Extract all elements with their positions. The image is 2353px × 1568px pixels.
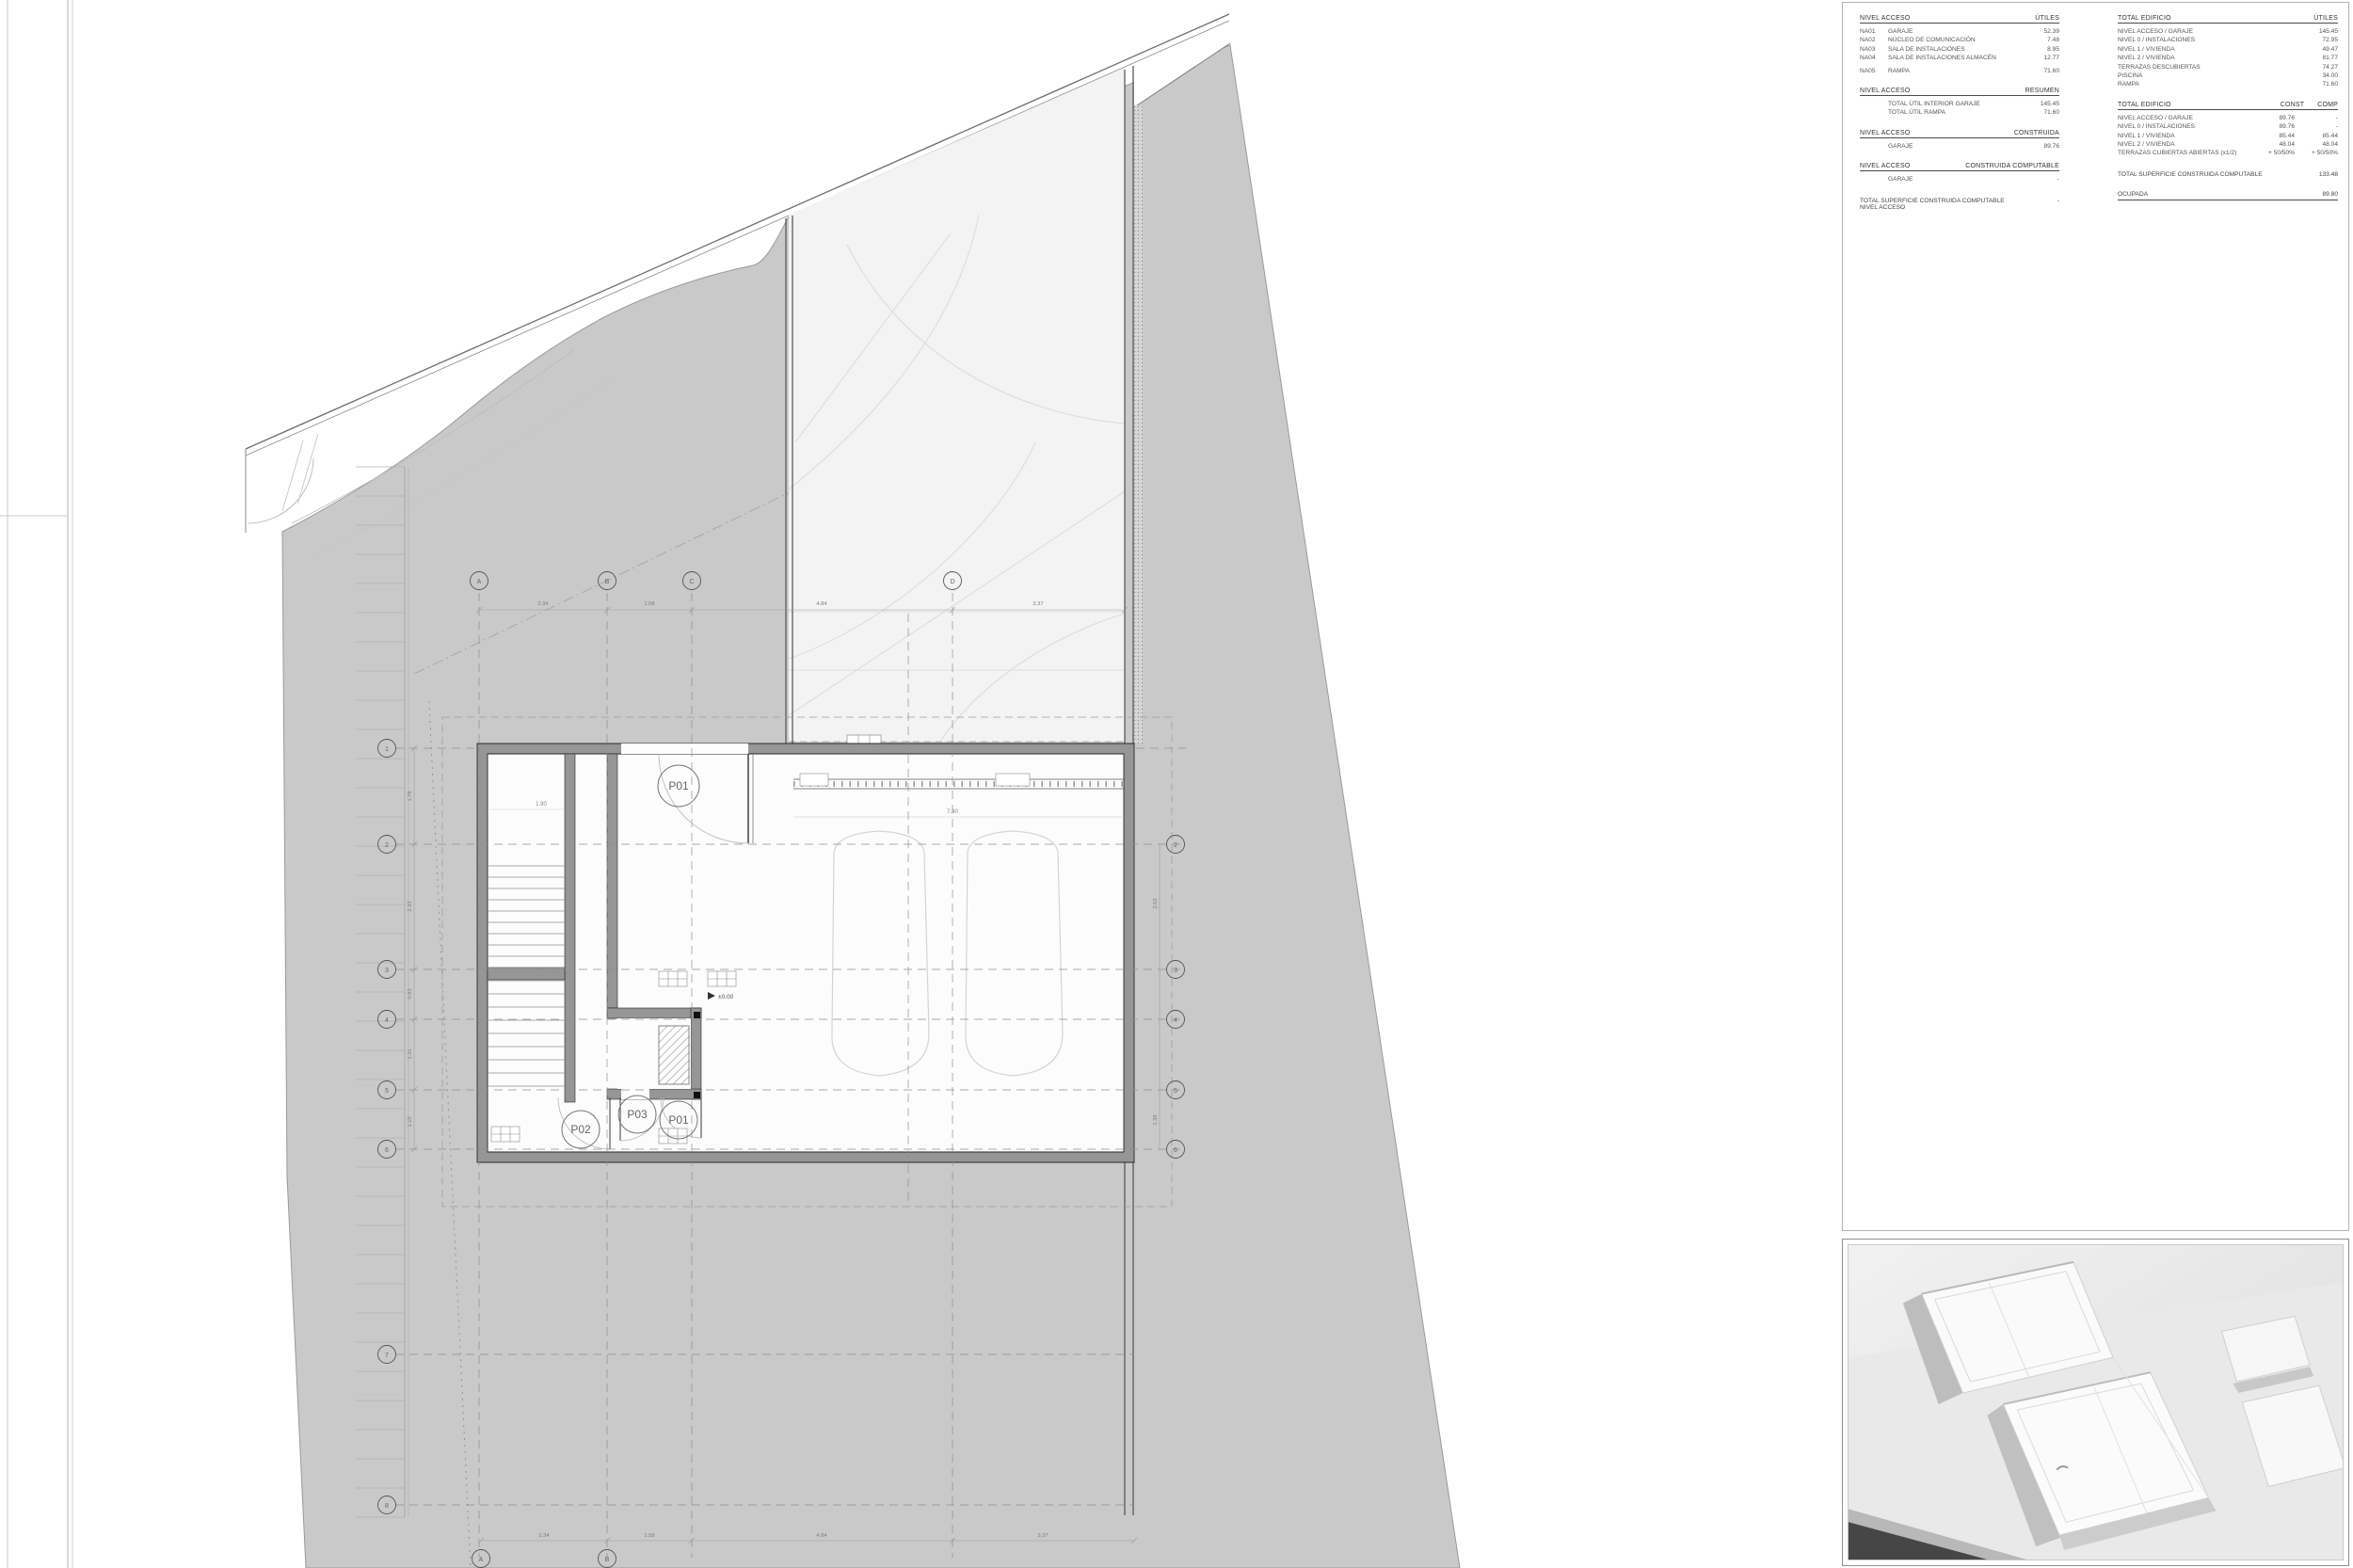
table-row: NIVEL ACCESO / GARAJE145.45 xyxy=(2118,27,2338,36)
svg-text:1.31: 1.31 xyxy=(408,1048,413,1059)
area-table-column-left: NIVEL ACCESOÚTILESNA01GARAJE52.39NA02NÚC… xyxy=(1860,15,2059,211)
table-row: NA03SALA DE INSTALACIONES8.95 xyxy=(1860,45,2059,54)
table-row: NA04SALA DE INSTALACIONES ALMACÉN12.77 xyxy=(1860,54,2059,62)
svg-text:2: 2 xyxy=(1174,842,1177,849)
table-row: NIVEL 2 / VIVIENDA48.0448.04 xyxy=(2118,140,2338,149)
table-row: NIVEL ACCESO / GARAJE89.76- xyxy=(2118,114,2338,122)
partition-wall xyxy=(565,754,575,1102)
svg-text:±0.00: ±0.00 xyxy=(718,994,734,1000)
equipment-hatch xyxy=(659,1026,689,1084)
table-total-row: TOTAL SUPERFICIE CONSTRUIDA COMPUTABLE13… xyxy=(2118,171,2338,178)
table-header-cols: ÚTILES xyxy=(2313,15,2338,22)
svg-text:2.53: 2.53 xyxy=(1153,898,1159,908)
table-row: TERRAZAS CUBIERTAS ABIERTAS (x1/2)+ 50/5… xyxy=(2118,149,2338,157)
table-row: NIVEL 2 / VIVIENDA81.77 xyxy=(2118,54,2338,62)
svg-text:B: B xyxy=(605,1557,610,1563)
svg-text:4: 4 xyxy=(1174,1017,1177,1024)
area-table-column-right: TOTAL EDIFICIOÚTILESNIVEL ACCESO / GARAJ… xyxy=(2118,15,2338,200)
table-row: NIVEL 0 / INSTALACIONES72.95 xyxy=(2118,36,2338,44)
door-label-p01-top: P01 xyxy=(668,779,689,792)
svg-text:2.34: 2.34 xyxy=(537,601,549,607)
door-label-p02: P02 xyxy=(570,1123,591,1136)
table-header-cols: CONSTRUIDA xyxy=(2014,130,2059,136)
svg-text:1.10: 1.10 xyxy=(408,1116,413,1127)
area-table: TOTAL EDIFICIOCONSTCOMPNIVEL ACCESO / GA… xyxy=(2118,102,2338,158)
table-row: RAMPA71.60 xyxy=(2118,80,2338,88)
svg-text:2.34: 2.34 xyxy=(538,1533,550,1539)
area-table: NIVEL ACCESOCONSTRUIDAGARAJE89.76 xyxy=(1860,130,2059,151)
svg-text:0.93: 0.93 xyxy=(408,988,413,999)
wall-hatch-strip xyxy=(1134,105,1143,744)
svg-text:6: 6 xyxy=(385,1147,389,1154)
table-header: TOTAL EDIFICIOÚTILES xyxy=(2118,15,2338,24)
svg-text:1.58: 1.58 xyxy=(644,601,654,607)
area-table: NIVEL ACCESORESUMENTOTAL ÚTIL INTERIOR G… xyxy=(1860,88,2059,118)
table-row: GARAJE- xyxy=(1860,175,2059,184)
table-header-cols: RESUMEN xyxy=(2025,88,2059,94)
svg-text:4.84: 4.84 xyxy=(816,1533,827,1539)
table-row: NIVEL 0 / INSTALACIONES89.76- xyxy=(2118,122,2338,131)
svg-text:8: 8 xyxy=(385,1503,389,1510)
table-row: NA01GARAJE52.39 xyxy=(1860,27,2059,36)
table-row: TOTAL ÚTIL RAMPA71.60 xyxy=(1860,108,2059,117)
gate-swing-arc xyxy=(248,458,313,523)
svg-text:2.33: 2.33 xyxy=(408,901,413,911)
machine-room xyxy=(607,1008,701,1099)
svg-text:4: 4 xyxy=(385,1017,389,1024)
table-row: NIVEL 1 / VIVIENDA85.4485.44 xyxy=(2118,132,2338,140)
svg-text:3.37: 3.37 xyxy=(1032,601,1043,607)
svg-text:D: D xyxy=(950,579,954,585)
table-header: NIVEL ACCESOCONSTRUIDA xyxy=(1860,130,2059,138)
drawing-sheet: 1.90 7.90 xyxy=(0,0,2353,1568)
svg-text:6: 6 xyxy=(1174,1147,1177,1154)
corner-marker xyxy=(694,1092,700,1098)
area-table: NIVEL ACCESOÚTILESNA01GARAJE52.39NA02NÚC… xyxy=(1860,15,2059,75)
area-table: NIVEL ACCESOCONSTRUIDA COMPUTABLEGARAJE- xyxy=(1860,163,2059,184)
svg-text:3: 3 xyxy=(1174,968,1177,974)
svg-text:3.37: 3.37 xyxy=(1037,1533,1048,1539)
corner-marker xyxy=(694,1012,700,1018)
table-header: NIVEL ACCESORESUMEN xyxy=(1860,88,2059,96)
svg-text:5: 5 xyxy=(1174,1088,1177,1095)
partition-wall xyxy=(607,754,617,1008)
svg-text:C: C xyxy=(689,579,694,585)
svg-text:4.84: 4.84 xyxy=(816,601,827,607)
table-total-row: TOTAL SUPERFICIE CONSTRUIDA COMPUTABLE N… xyxy=(1860,198,2059,211)
table-header: NIVEL ACCESOCONSTRUIDA COMPUTABLE xyxy=(1860,163,2059,171)
model-photo-panel xyxy=(1842,1239,2349,1566)
table-row: TERRAZAS DESCUBIERTAS74.27 xyxy=(2118,63,2338,72)
table-header-cols: CONSTCOMP xyxy=(2281,102,2338,108)
opening-tag-box xyxy=(996,774,1030,786)
svg-text:A: A xyxy=(479,1557,484,1563)
table-row: NIVEL 1 / VIVIENDA49.47 xyxy=(2118,45,2338,54)
svg-text:B: B xyxy=(605,579,610,585)
table-row: PISCINA34.00 xyxy=(2118,72,2338,80)
table-header: TOTAL EDIFICIOCONSTCOMP xyxy=(2118,102,2338,110)
svg-text:7: 7 xyxy=(385,1352,389,1359)
building-interior xyxy=(488,754,1124,1152)
door-label-p03: P03 xyxy=(627,1108,648,1121)
area-tables-panel: NIVEL ACCESOÚTILESNA01GARAJE52.39NA02NÚC… xyxy=(1842,2,2349,1231)
svg-text:1.78: 1.78 xyxy=(408,791,413,801)
svg-text:1: 1 xyxy=(385,746,389,753)
svg-text:3: 3 xyxy=(385,968,389,974)
model-photo xyxy=(1848,1244,2344,1560)
table-row: NA05RAMPA71.60 xyxy=(1860,67,2059,75)
table-total-row: OCUPADA89.80 xyxy=(2118,191,2338,200)
table-row: NA02NÚCLEO DE COMUNICACIÓN7.48 xyxy=(1860,36,2059,44)
building: 1.90 7.90 xyxy=(477,744,1134,1162)
stair-dim-label: 1.90 xyxy=(536,802,547,808)
svg-text:1.58: 1.58 xyxy=(644,1533,654,1539)
opening-tag-box xyxy=(800,774,828,786)
door-label-p01-bottom: P01 xyxy=(668,1113,689,1127)
table-header: NIVEL ACCESOÚTILES xyxy=(1860,15,2059,24)
table-row: GARAJE89.76 xyxy=(1860,142,2059,151)
table-header-cols: CONSTRUIDA COMPUTABLE xyxy=(1965,163,2059,169)
svg-text:A: A xyxy=(477,579,482,585)
table-row: TOTAL ÚTIL INTERIOR GARAJE145.45 xyxy=(1860,100,2059,108)
sheet-edge-strip xyxy=(0,0,72,1568)
svg-text:1.38: 1.38 xyxy=(1153,1114,1159,1125)
svg-text:5: 5 xyxy=(385,1088,389,1095)
area-table: TOTAL EDIFICIOÚTILESNIVEL ACCESO / GARAJ… xyxy=(2118,15,2338,89)
table-header-cols: ÚTILES xyxy=(2035,15,2059,22)
svg-text:2: 2 xyxy=(385,842,389,849)
